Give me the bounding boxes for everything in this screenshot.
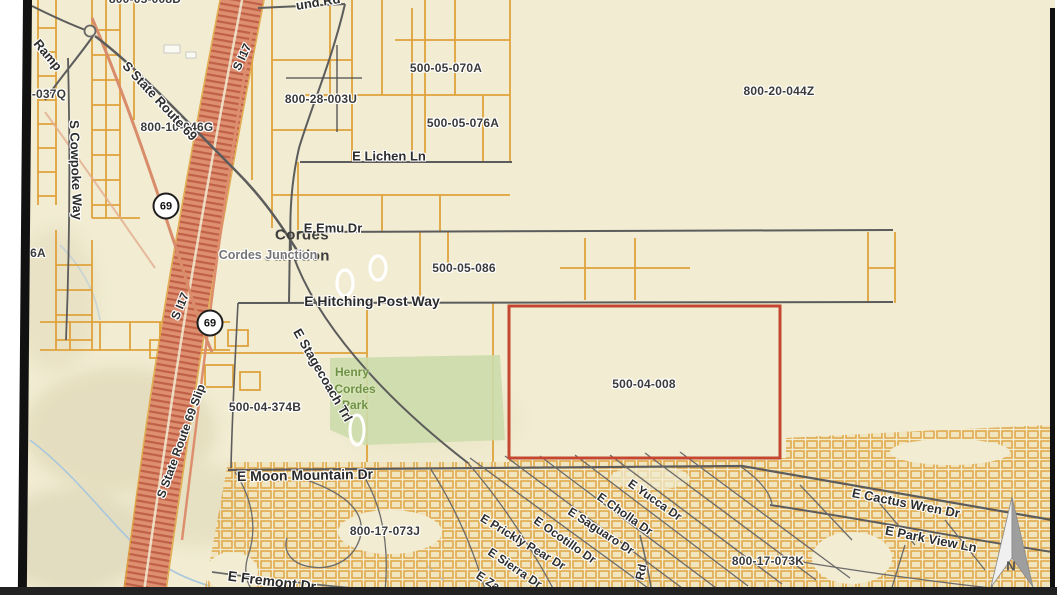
route-69-shield: 69 — [197, 310, 224, 337]
parcel-label: -037Q — [32, 87, 66, 101]
parcel-label: 500-05-076A — [427, 116, 499, 130]
parcel-label: 800-05-008D — [109, 0, 181, 6]
street-label: E Moon Mountain Dr — [237, 466, 373, 484]
junction-label: Cordes Junction — [219, 248, 318, 262]
park-label-line1: Henry — [335, 365, 369, 379]
parcel-label: 800-17-073K — [732, 554, 804, 568]
map-canvas[interactable]: Cordes Junction Cordes Junction 800-05-0… — [0, 0, 1057, 595]
screenshot-root: Cordes Junction Cordes Junction 800-05-0… — [0, 0, 1057, 595]
parcel-label: 800-28-003U — [285, 92, 357, 106]
north-arrow-label: N — [1006, 559, 1015, 574]
parcel-label: 500-05-070A — [410, 61, 482, 75]
parcel-label: 800-20-044Z — [744, 84, 815, 98]
parcel-label: 800-17-073J — [350, 524, 420, 538]
frame-bottom-bar — [0, 587, 1057, 595]
route-69-shield: 69 — [153, 193, 180, 220]
street-label: E Lichen Ln — [352, 149, 426, 164]
street-label: E Hitching Post Way — [304, 293, 440, 309]
highlighted-parcel[interactable] — [509, 306, 780, 458]
parcel-label: 500-05-086 — [432, 261, 495, 275]
parcel-label: 6A — [30, 246, 46, 260]
parcel-label: 500-04-374B — [229, 400, 301, 414]
street-label: E Emu Dr — [304, 221, 363, 236]
